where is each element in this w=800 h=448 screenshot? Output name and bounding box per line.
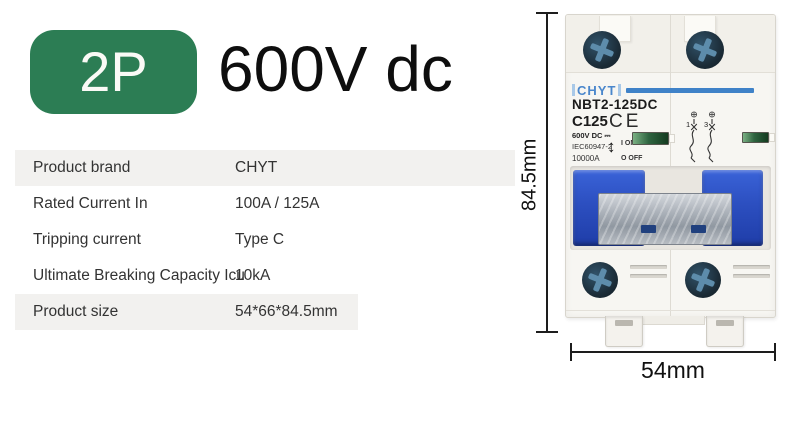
breaking-capacity-text: 10000A bbox=[572, 154, 600, 163]
on-off-arrow-icon: ↕ bbox=[607, 135, 616, 159]
tie-bar-slot bbox=[691, 225, 706, 233]
terminal-screw-icon bbox=[686, 31, 724, 69]
table-row: Product brand CHYT bbox=[15, 150, 515, 186]
height-dimension-cap bbox=[536, 12, 558, 14]
tie-bar-slot bbox=[641, 225, 656, 233]
spec-value: 54*66*84.5mm bbox=[235, 303, 338, 321]
body-seam bbox=[566, 310, 775, 311]
handle-tie-bar bbox=[598, 193, 732, 245]
table-row: Product size 54*66*84.5mm bbox=[15, 294, 515, 330]
pole-count-label: 2P bbox=[79, 44, 148, 100]
din-tab-slot bbox=[615, 320, 633, 326]
phillips-cross-icon bbox=[586, 34, 617, 65]
indicator-button bbox=[669, 134, 675, 143]
off-label: O OFF bbox=[621, 155, 642, 162]
spec-label: Product size bbox=[33, 303, 118, 321]
terminal-screw-icon bbox=[583, 31, 621, 69]
ce-mark: CE bbox=[609, 111, 641, 133]
voltage-rating-text: 600V DC ⎓ bbox=[572, 131, 611, 141]
din-rail-channel bbox=[641, 316, 705, 325]
indicator-window bbox=[742, 132, 769, 143]
terminal-screw-icon bbox=[582, 262, 618, 298]
table-row: Rated Current In 100A / 125A bbox=[15, 186, 515, 222]
spec-value: 10kA bbox=[235, 267, 270, 285]
phillips-cross-icon bbox=[687, 264, 718, 295]
spec-label: Rated Current In bbox=[33, 195, 148, 213]
voltage-title: 600V dc bbox=[218, 34, 453, 104]
spec-value: Type C bbox=[235, 231, 284, 249]
pole-count-badge: 2P bbox=[30, 30, 197, 114]
spec-label: Product brand bbox=[33, 159, 130, 177]
brand-logo: CHYT bbox=[570, 83, 754, 97]
din-tab-slot bbox=[716, 320, 734, 326]
brand-logo-text: CHYT bbox=[577, 84, 616, 97]
spec-label: Tripping current bbox=[33, 231, 141, 249]
vent-slot bbox=[733, 274, 770, 278]
vent-slot bbox=[630, 265, 667, 269]
width-dimension-label: 54mm bbox=[570, 357, 776, 384]
logo-bar-icon bbox=[572, 84, 575, 96]
circuit-diagram: 1 3 2 4 bbox=[685, 110, 727, 172]
rating-text: C125 bbox=[572, 113, 608, 130]
terminal-number: 3 bbox=[704, 120, 708, 129]
height-dimension-label: 84.5mm bbox=[517, 110, 543, 240]
phillips-cross-icon bbox=[689, 34, 720, 65]
spec-table: Product brand CHYT Rated Current In 100A… bbox=[15, 150, 515, 330]
height-dimension-line bbox=[546, 13, 548, 333]
table-row: Tripping current Type C bbox=[15, 222, 515, 258]
din-mount-tab bbox=[706, 316, 744, 347]
spec-value: CHYT bbox=[235, 159, 277, 177]
logo-bar-icon bbox=[618, 84, 621, 96]
din-mount-tab bbox=[605, 316, 643, 347]
logo-line bbox=[626, 88, 754, 93]
table-row: Ultimate Breaking Capacity Icu 10kA bbox=[15, 258, 515, 294]
terminal-screw-icon bbox=[685, 262, 721, 298]
vent-slot bbox=[733, 265, 770, 269]
height-dimension-cap bbox=[536, 331, 558, 333]
spec-value: 100A / 125A bbox=[235, 195, 319, 213]
product-infographic: 2P 600V dc Product brand CHYT Rated Curr… bbox=[0, 0, 800, 448]
width-dimension-line bbox=[570, 351, 776, 353]
model-text: NBT2-125DC bbox=[572, 97, 658, 112]
spec-label: Ultimate Breaking Capacity Icu bbox=[33, 267, 245, 285]
terminal-number: 1 bbox=[686, 120, 690, 129]
breaker-photo: CHYT NBT2-125DC C125 CE 600V DC ⎓ IEC609… bbox=[565, 14, 776, 348]
indicator-button bbox=[769, 133, 775, 142]
vent-slot bbox=[630, 274, 667, 278]
phillips-cross-icon bbox=[584, 264, 615, 295]
indicator-window bbox=[632, 132, 669, 145]
